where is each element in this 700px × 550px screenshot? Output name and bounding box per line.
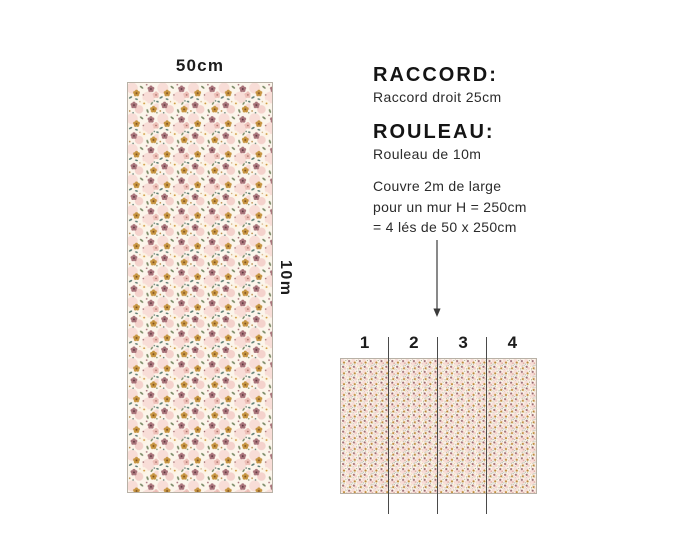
raccord-text: Raccord droit 25cm [373,89,593,105]
le-divider-line [388,337,389,514]
coverage-line: Couvre 2m de large [373,176,593,197]
le-number-1: 1 [340,333,389,353]
le-divider-line [437,337,438,514]
coverage-text: Couvre 2m de large pour un mur H = 250cm… [373,176,593,238]
le-number-4: 4 [488,333,537,353]
strip-height-label: 10m [276,260,294,297]
raccord-title: RACCORD: [373,64,593,87]
le-number-2: 2 [389,333,438,353]
rouleau-title: ROULEAU: [373,121,593,144]
wallpaper-strip-preview [127,82,273,493]
le-number-3: 3 [439,333,488,353]
coverage-line: = 4 lés de 50 x 250cm [373,217,593,238]
strip-width-label: 50cm [127,56,273,76]
coverage-line: pour un mur H = 250cm [373,197,593,218]
rouleau-text: Rouleau de 10m [373,146,593,162]
wall-coverage-preview [340,358,537,494]
le-divider-line [486,337,487,514]
down-arrow-icon [431,239,443,318]
floral-pattern-large [128,83,272,492]
les-numbers-row: 1 2 3 4 [340,333,537,353]
floral-pattern-small [341,359,536,493]
specs-block: RACCORD: Raccord droit 25cm ROULEAU: Rou… [373,64,593,238]
